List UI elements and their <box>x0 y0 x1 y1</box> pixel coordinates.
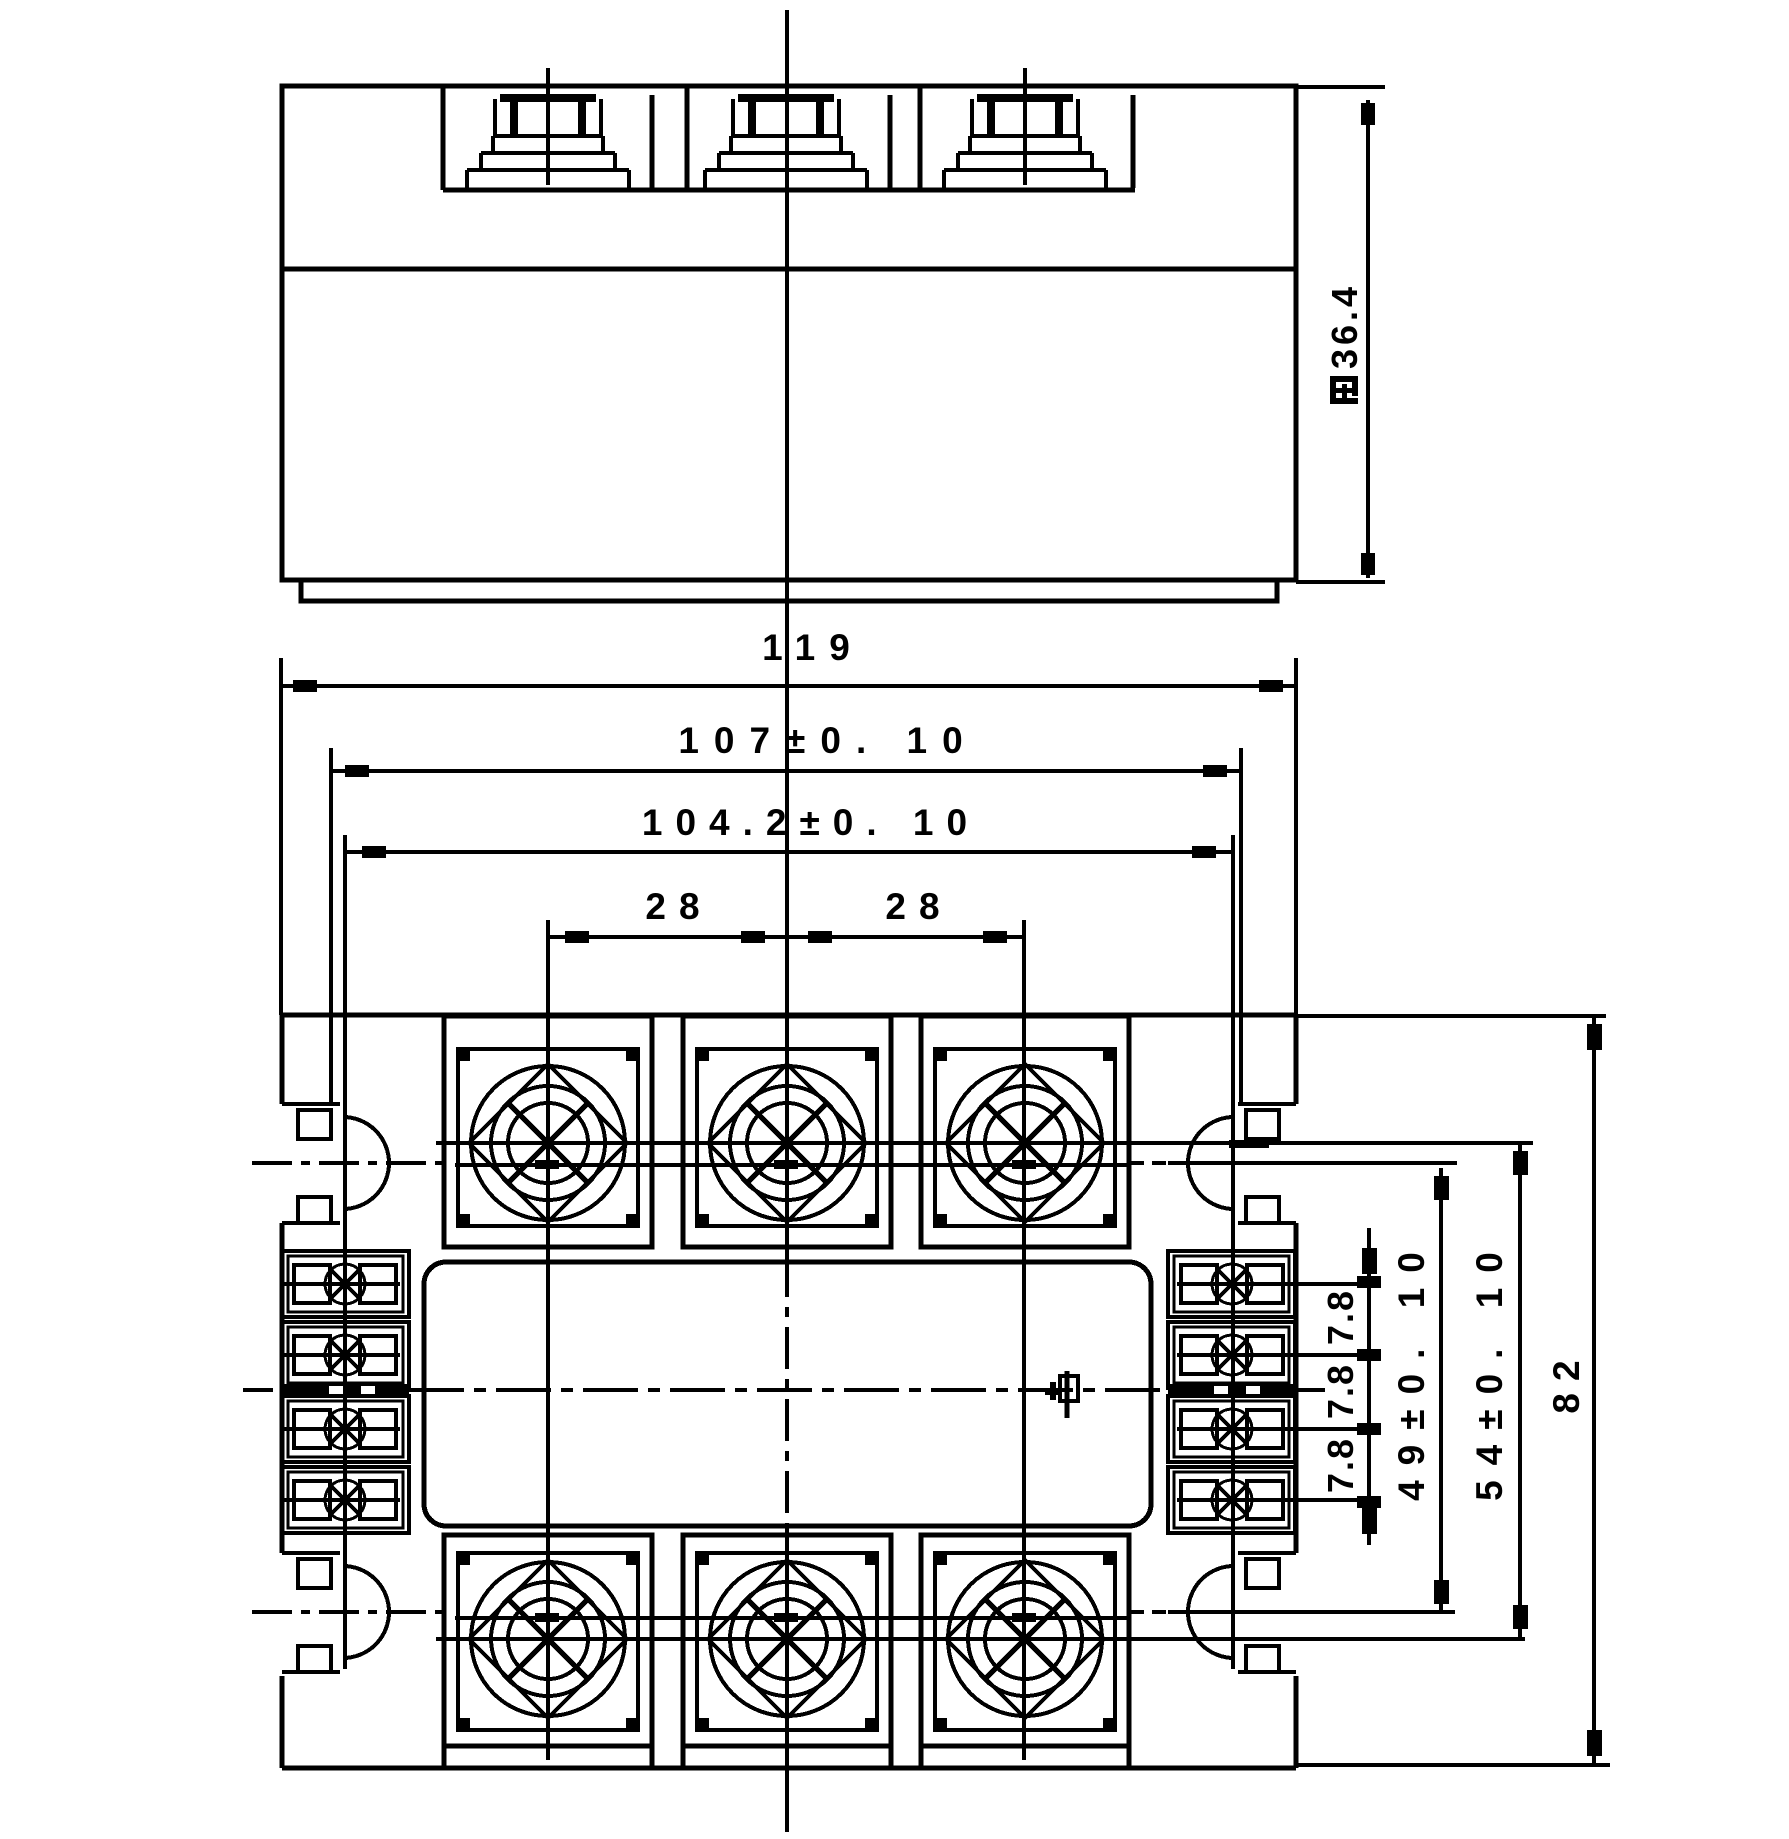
svg-text:107±0. 10: 107±0. 10 <box>678 720 977 761</box>
svg-text:82: 82 <box>1546 1348 1587 1413</box>
svg-text:119: 119 <box>762 627 864 668</box>
svg-text:28: 28 <box>885 886 952 927</box>
svg-text:104.2±0. 10: 104.2±0. 10 <box>642 802 980 843</box>
svg-text:49±0. 10: 49±0. 10 <box>1391 1237 1432 1501</box>
svg-text:7.8: 7.8 <box>1320 1289 1361 1345</box>
svg-text:7.8: 7.8 <box>1320 1437 1361 1493</box>
svg-text:36.4: 36.4 <box>1324 283 1365 369</box>
svg-text:7.8: 7.8 <box>1320 1363 1361 1419</box>
svg-text:28: 28 <box>645 886 712 927</box>
svg-text:54±0. 10: 54±0. 10 <box>1469 1237 1510 1501</box>
